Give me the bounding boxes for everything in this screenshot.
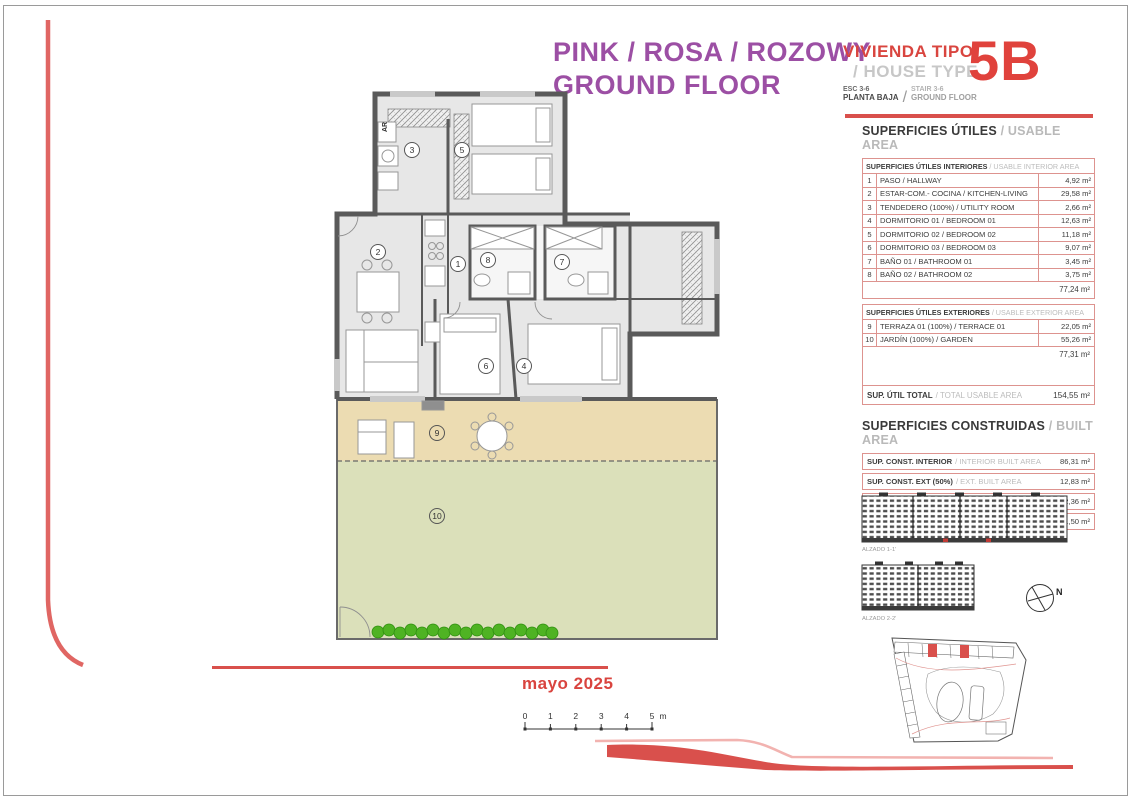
compass: N	[1027, 585, 1063, 612]
drawings-panel: ALZADO 1-1' ALZADO 2-2' N	[855, 488, 1107, 756]
floor-plan: AR 1 2 3 4 5 6 7 8 9 10	[330, 84, 722, 656]
table-row: 7BAÑO 01 / BATHROOM 013,45 m²	[863, 255, 1094, 269]
usable-interior-table: SUPERFICIES ÚTILES INTERIORES / USABLE I…	[862, 158, 1095, 299]
table-row: 8BAÑO 02 / BATHROOM 023,75 m²	[863, 269, 1094, 283]
table-row: 6DORMITORIO 03 / BEDROOM 039,07 m²	[863, 242, 1094, 256]
room-number-2: 2	[371, 245, 386, 260]
room-number-5: 5	[455, 143, 470, 158]
elevation-1-label: ALZADO 1-1'	[862, 547, 896, 553]
room-number-8: 8	[481, 253, 496, 268]
scale-tick-3: 3	[599, 711, 604, 721]
table-row: 1PASO / HALLWAY4,92 m²	[863, 174, 1094, 188]
date-rule	[212, 666, 608, 669]
scale-unit: m	[659, 711, 666, 721]
usable-total-row: SUP. ÚTIL TOTAL/ TOTAL USABLE AREA154,55…	[863, 385, 1094, 404]
svg-text:1: 1	[456, 259, 461, 269]
svg-text:5: 5	[460, 145, 465, 155]
elevation-2-drawing: ALZADO 2-2'	[862, 562, 974, 623]
table-row: SUP. CONST. INTERIOR/ INTERIOR BUILT ARE…	[862, 453, 1095, 470]
usable-exterior-header: SUPERFICIES ÚTILES EXTERIORES / USABLE E…	[863, 305, 1094, 320]
usable-interior-header: SUPERFICIES ÚTILES INTERIORES / USABLE I…	[863, 159, 1094, 174]
usable-exterior-table: SUPERFICIES ÚTILES EXTERIORES / USABLE E…	[862, 304, 1095, 405]
unit-code: 5B	[968, 28, 1042, 93]
svg-text:6: 6	[484, 361, 489, 371]
table-row: 9TERRAZA 01 (100%) / TERRACE 0122,05 m²	[863, 320, 1094, 334]
room-number-3: 3	[405, 143, 420, 158]
table-row: 5DORMITORIO 02 / BEDROOM 0211,18 m²	[863, 228, 1094, 242]
interior-subtotal: 77,24 m²	[863, 282, 1094, 298]
stair-en: STAIR 3-6GROUND FLOOR	[911, 86, 977, 102]
room-number-6: 6	[479, 359, 494, 374]
compass-north-label: N	[1056, 587, 1063, 597]
closet-hatch-right	[682, 232, 702, 324]
scale-bar: 0 1 2 3 4 5 m	[515, 708, 680, 738]
areas-panel: SUPERFICIES ÚTILES / USABLE AREA SUPERFI…	[862, 124, 1095, 530]
garden-area	[337, 461, 717, 639]
stair-es: ESC 3-6PLANTA BAJA	[843, 86, 899, 102]
table-row: 3TENDEDERO (100%) / UTILITY ROOM2,66 m²	[863, 201, 1094, 215]
scale-tick-1: 1	[548, 711, 553, 721]
date-label: mayo 2025	[522, 674, 613, 694]
scale-tick-0: 0	[523, 711, 528, 721]
table-row: 4DORMITORIO 01 / BEDROOM 0112,63 m²	[863, 215, 1094, 229]
svg-text:2: 2	[376, 247, 381, 257]
red-rule	[845, 114, 1093, 118]
sheet-title-line1: PINK / ROSA / ROZOWY	[553, 36, 871, 69]
room-number-4: 4	[517, 359, 532, 374]
room-number-7: 7	[555, 255, 570, 270]
elevation-1-drawing: ALZADO 1-1'	[862, 493, 1067, 554]
table-row: 2ESTAR-COM.- COCINA / KITCHEN-LIVING29,5…	[863, 188, 1094, 202]
svg-text:10: 10	[432, 511, 442, 521]
svg-text:9: 9	[435, 428, 440, 438]
elevation-2-label: ALZADO 2-2'	[862, 616, 896, 622]
exterior-subtotal: 77,31 m²	[863, 347, 1094, 363]
left-red-curve	[48, 20, 83, 665]
svg-text:7: 7	[560, 257, 565, 267]
room-number-1: 1	[451, 257, 466, 272]
svg-text:8: 8	[486, 255, 491, 265]
scale-tick-4: 4	[624, 711, 629, 721]
scale-tick-2: 2	[573, 711, 578, 721]
built-area-heading: SUPERFICIES CONSTRUIDAS / BUILT AREA	[862, 419, 1095, 447]
scale-tick-5: 5	[650, 711, 655, 721]
usable-area-heading: SUPERFICIES ÚTILES / USABLE AREA	[862, 124, 1095, 152]
table-row: 10JARDÍN (100%) / GARDEN55,26 m²	[863, 334, 1094, 348]
site-plan	[892, 638, 1026, 742]
svg-text:3: 3	[410, 145, 415, 155]
svg-text:4: 4	[522, 361, 527, 371]
stair-slash: /	[903, 94, 907, 102]
dressing-hatch	[388, 109, 450, 127]
ar-label: AR	[382, 122, 389, 132]
